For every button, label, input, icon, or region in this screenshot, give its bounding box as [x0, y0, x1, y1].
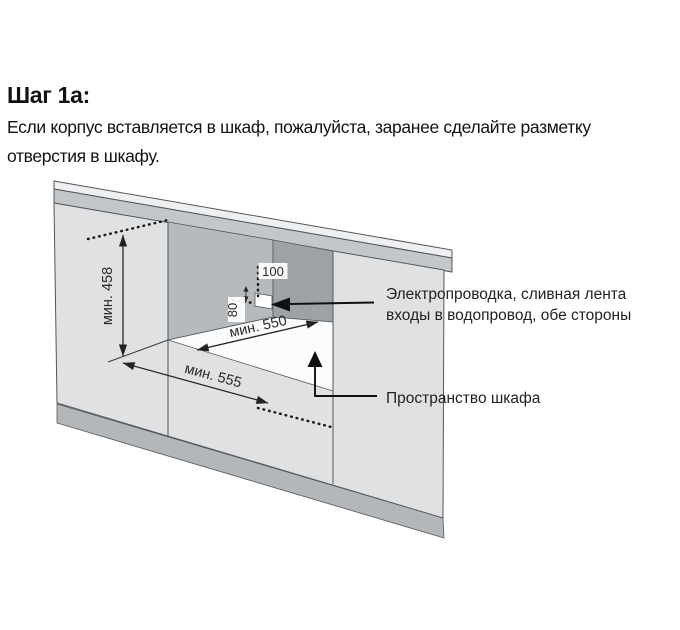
niche-back-wall — [273, 240, 333, 322]
utilities-label-line1: Электропроводка, сливная лента — [386, 286, 627, 303]
installation-diagram: мин. 458 мин. 555 мин. 550 100 80 — [0, 0, 680, 630]
utilities-label-line2: входы в водопровод, обе стороны — [386, 307, 631, 324]
cabinet-space-label: Пространство шкафа — [386, 390, 541, 407]
height-dimension-label: мин. 458 — [100, 267, 116, 325]
hole-side-offset-label: 80 — [225, 303, 240, 317]
manual-page: Шаг 1а: Если корпус вставляется в шкаф, … — [0, 0, 680, 630]
hole-top-offset-label: 100 — [262, 264, 284, 279]
